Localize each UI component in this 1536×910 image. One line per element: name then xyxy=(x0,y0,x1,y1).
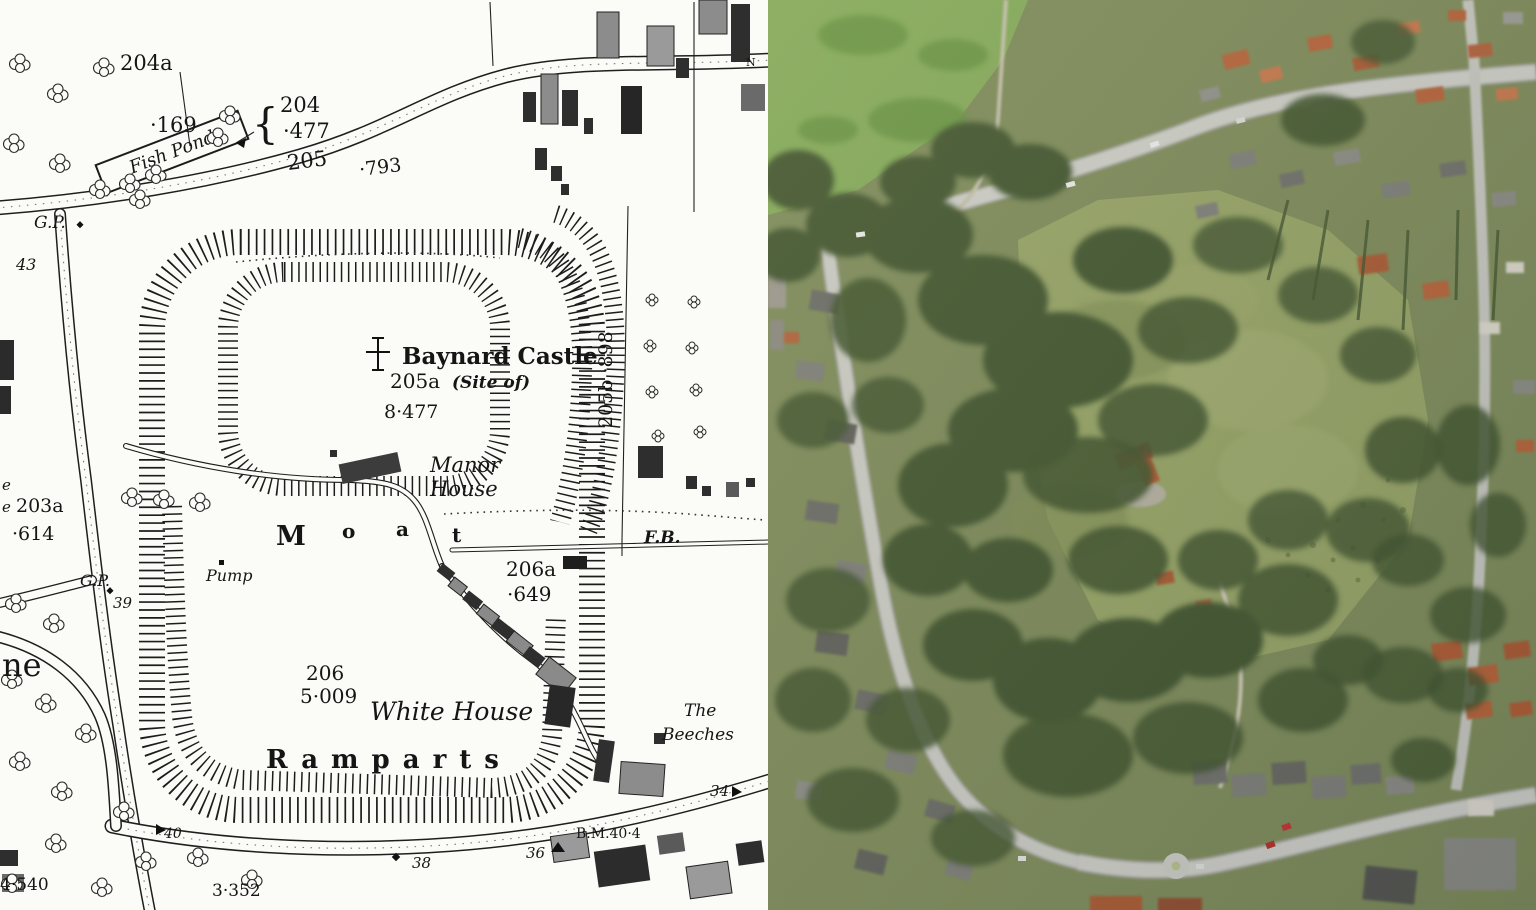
parcel-acreage: 8·477 xyxy=(384,401,438,423)
parcel-acreage: 5·009 xyxy=(300,684,357,708)
beeches-label: Beeches xyxy=(661,725,734,745)
site-of-label: (Site of) xyxy=(452,373,530,393)
parcel-acreage: ·614 xyxy=(12,523,54,545)
parcel-number: 203a xyxy=(16,495,64,517)
photo-lighting-overlay xyxy=(768,0,1536,910)
pump-icon xyxy=(219,560,224,565)
manor-house-label: Manor xyxy=(429,453,502,477)
benchmark-label: B.M.40·4 xyxy=(576,826,641,842)
number-label: 43 xyxy=(15,255,36,274)
parcel-acreage: ·649 xyxy=(507,582,552,606)
spot-level: 4·540 xyxy=(0,875,49,895)
parcel-number: 205 xyxy=(286,146,329,175)
parcel-number: 206a xyxy=(506,557,556,581)
pump-label: Pump xyxy=(205,566,252,585)
number-label: 34 xyxy=(710,782,729,800)
parcel-number-vertical: 205b ·898 xyxy=(595,331,617,428)
number-label: 40 xyxy=(163,826,182,842)
edge-fragment: e xyxy=(2,498,11,516)
historic-map-panel: Fish Pond xyxy=(0,0,768,910)
moat-letter: o xyxy=(342,519,355,543)
beeches-label: The xyxy=(684,701,716,721)
moat-letter: a xyxy=(396,517,409,541)
parcel-acreage: ·169 xyxy=(150,113,197,137)
brace-glyph: { xyxy=(252,99,279,148)
guide-post-label: G.P. xyxy=(80,571,110,590)
number-label: 39 xyxy=(113,594,133,612)
footbridge-label: F.B. xyxy=(643,528,681,548)
edge-fragment: e xyxy=(2,476,11,494)
guide-post-label: G.P. xyxy=(34,213,66,233)
moat-letter: M xyxy=(276,521,306,552)
moat-letter: t xyxy=(452,523,462,547)
parcel-number: 204 xyxy=(280,93,320,117)
white-house-label: White House xyxy=(370,697,533,726)
number-label: 38 xyxy=(412,854,431,872)
north-label: N xyxy=(746,56,756,69)
manor-house-label: House xyxy=(429,477,498,501)
number-label: 36 xyxy=(526,844,546,862)
baynard-castle-label: Baynard Castle xyxy=(402,343,598,370)
map-aerial-comparison: Fish Pond xyxy=(0,0,1536,910)
ramparts-label: Ramparts xyxy=(266,745,512,775)
spot-level: 3·352 xyxy=(212,881,261,901)
parcel-acreage: ·477 xyxy=(283,119,330,143)
road-name-fragment: ne xyxy=(2,646,42,684)
parcel-number: 204a xyxy=(120,51,173,75)
aerial-photo-panel xyxy=(768,0,1536,910)
parcel-number: 205a xyxy=(390,369,440,393)
parcel-number: 206 xyxy=(306,661,344,685)
